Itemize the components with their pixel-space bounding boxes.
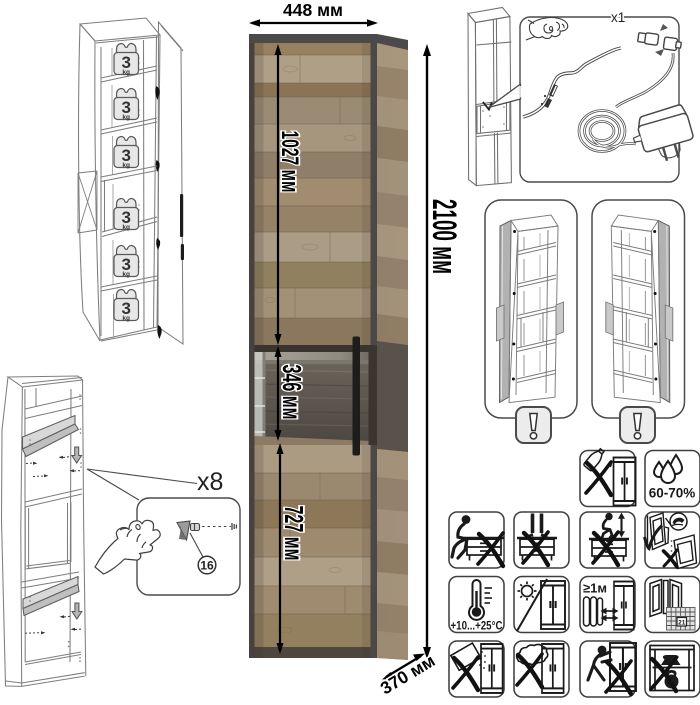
svg-text:2100 мм: 2100 мм <box>425 199 463 274</box>
svg-text:60-70%: 60-70% <box>649 486 696 501</box>
svg-text:346 мм: 346 мм <box>277 365 307 420</box>
svg-text:21: 21 <box>678 620 686 627</box>
svg-text:≥1м: ≥1м <box>583 581 607 596</box>
svg-text:727 мм: 727 мм <box>279 506 309 561</box>
svg-text:x8: x8 <box>197 468 223 496</box>
svg-text:16: 16 <box>200 559 214 573</box>
svg-text:1027 мм: 1027 мм <box>276 131 303 193</box>
svg-text:+10...+25°C: +10...+25°C <box>451 619 503 633</box>
svg-text:x1: x1 <box>611 10 625 25</box>
svg-text:448 мм: 448 мм <box>283 0 343 20</box>
